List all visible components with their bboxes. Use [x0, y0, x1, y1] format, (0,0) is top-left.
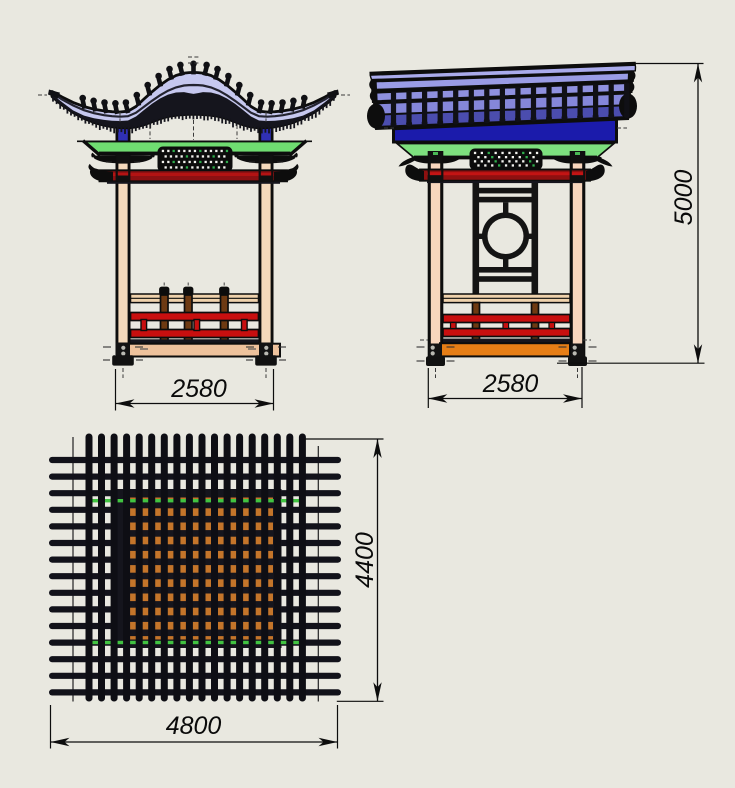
svg-text:4400: 4400	[351, 532, 379, 588]
svg-text:5000: 5000	[670, 170, 698, 226]
svg-text:2580: 2580	[482, 370, 539, 398]
svg-text:4800: 4800	[166, 712, 222, 740]
svg-text:2580: 2580	[170, 375, 227, 403]
